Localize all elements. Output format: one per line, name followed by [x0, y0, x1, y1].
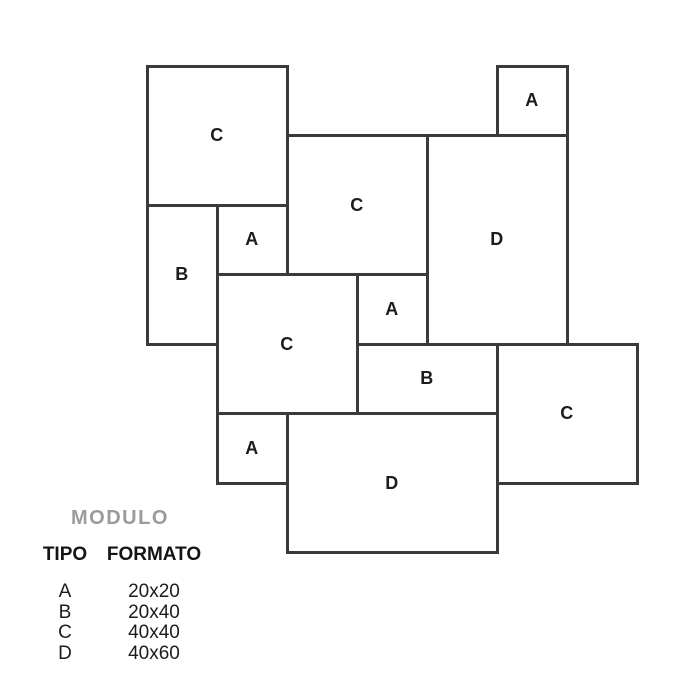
tile-c: C [496, 343, 639, 485]
tile-b: B [146, 204, 219, 346]
tile-label: A [385, 299, 399, 320]
legend-row-formato: 40x60 [106, 644, 202, 665]
legend-header: TIPO FORMATO [30, 544, 202, 566]
tile-a: A [216, 412, 289, 485]
legend-row-tipo: B [30, 603, 100, 624]
legend-row-formato: 40x40 [106, 623, 202, 644]
tile-d: D [286, 412, 499, 554]
tile-d: D [426, 134, 569, 346]
tile-c: C [286, 134, 429, 276]
tile-label: C [560, 403, 574, 424]
tile-label: B [420, 368, 434, 389]
tile-a: A [356, 273, 429, 346]
legend-row-tipo: C [30, 623, 100, 644]
legend-row-tipo: D [30, 644, 100, 665]
legend-row: C 40x40 [30, 623, 202, 644]
legend-row: D 40x60 [30, 644, 202, 665]
tile-label: C [210, 125, 224, 146]
legend-title: MODULO [71, 507, 169, 530]
legend-header-formato: FORMATO [106, 544, 202, 566]
tile-label: C [350, 195, 364, 216]
legend-row: B 20x40 [30, 603, 202, 624]
legend-row-formato: 20x40 [106, 603, 202, 624]
legend-row-formato: 20x20 [106, 582, 202, 603]
tile-label: C [280, 334, 294, 355]
tile-b: B [356, 343, 499, 416]
tile-label: D [490, 229, 504, 250]
tile-label: A [245, 438, 259, 459]
tile-a: A [216, 204, 289, 277]
legend-rows: A 20x20 B 20x40 C 40x40 D 40x60 [30, 582, 202, 664]
tile-label: B [175, 264, 189, 285]
tile-c: C [146, 65, 289, 207]
legend-row: A 20x20 [30, 582, 202, 603]
legend-row-tipo: A [30, 582, 100, 603]
legend-header-tipo: TIPO [30, 544, 100, 566]
tile-c: C [216, 273, 359, 415]
tile-label: A [525, 90, 539, 111]
tile-pattern-diagram: CACDBACABCAD MODULO TIPO FORMATO A 20x20… [0, 0, 700, 700]
tile-a: A [496, 65, 569, 138]
tile-label: A [245, 229, 259, 250]
tile-label: D [385, 473, 399, 494]
